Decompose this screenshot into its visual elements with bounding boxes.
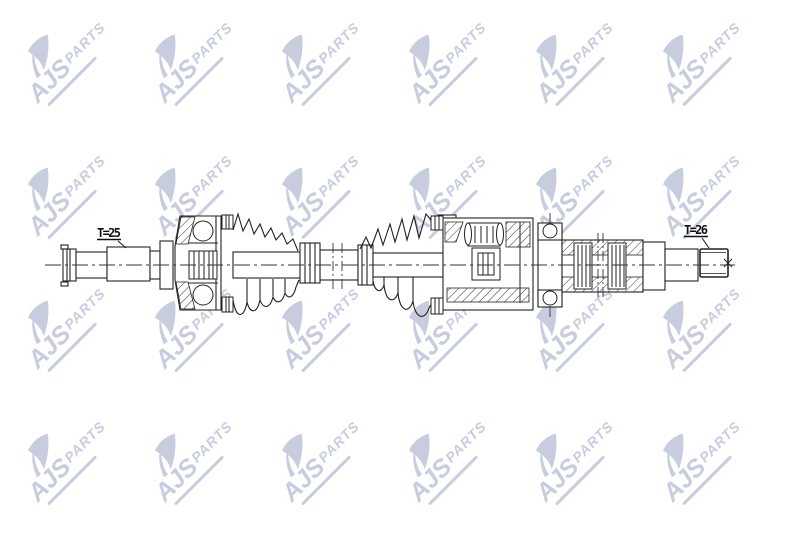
spline-band-2 xyxy=(608,243,626,289)
inner-joint-hub xyxy=(472,248,500,280)
boot-clamp-left xyxy=(222,215,233,312)
spline-band-1 xyxy=(574,243,592,289)
driveshaft-technical-drawing: T=25 T=26 xyxy=(0,0,800,533)
tripod-roller xyxy=(465,223,504,246)
cv-ball-bottom xyxy=(193,285,213,305)
bearing-ball-bottom xyxy=(543,291,557,305)
damper-collar xyxy=(300,243,320,283)
left-shaft-cylinder xyxy=(107,247,150,281)
spline-stub-left xyxy=(61,245,76,286)
label-right-leader-line xyxy=(702,238,709,248)
spline-stub-right xyxy=(700,249,728,277)
cv-ball-top xyxy=(193,221,213,241)
shaft-bodies xyxy=(61,215,728,310)
label-left-spline-count: T=25 xyxy=(97,226,121,240)
bearing-ball-top xyxy=(543,224,557,238)
right-shaft-cylinder xyxy=(643,242,665,290)
label-right-spline-count: T=26 xyxy=(684,223,708,237)
